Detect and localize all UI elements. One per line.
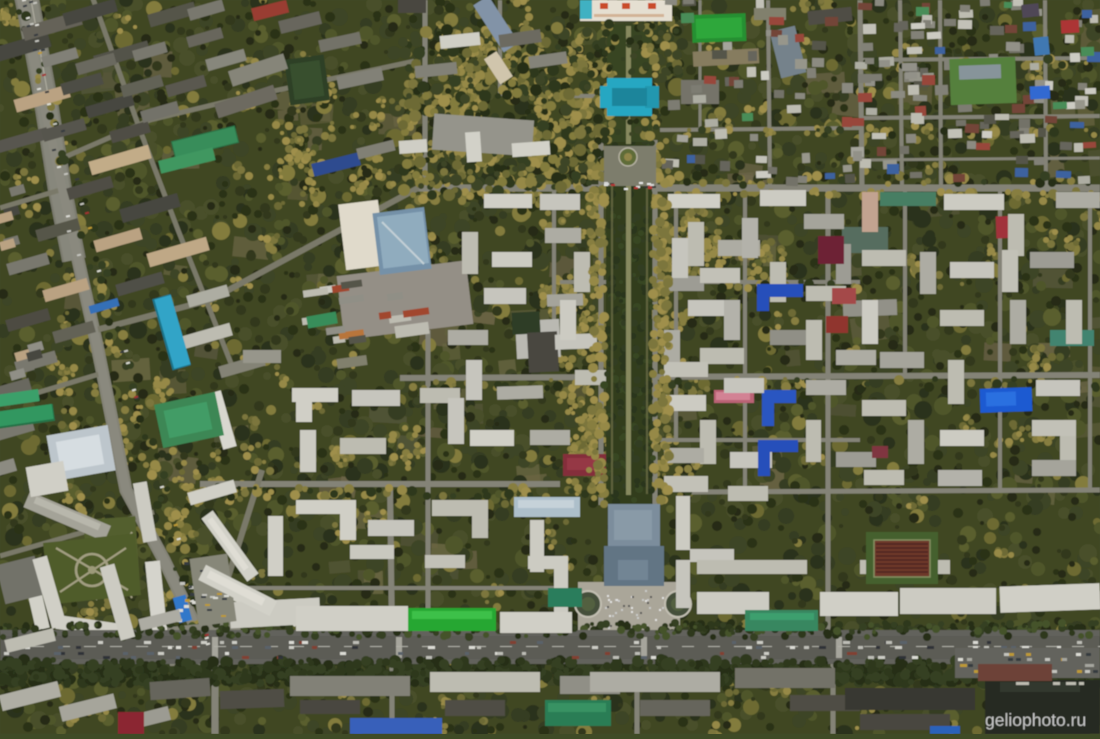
svg-text:geliophoto.ru: geliophoto.ru: [985, 710, 1086, 730]
